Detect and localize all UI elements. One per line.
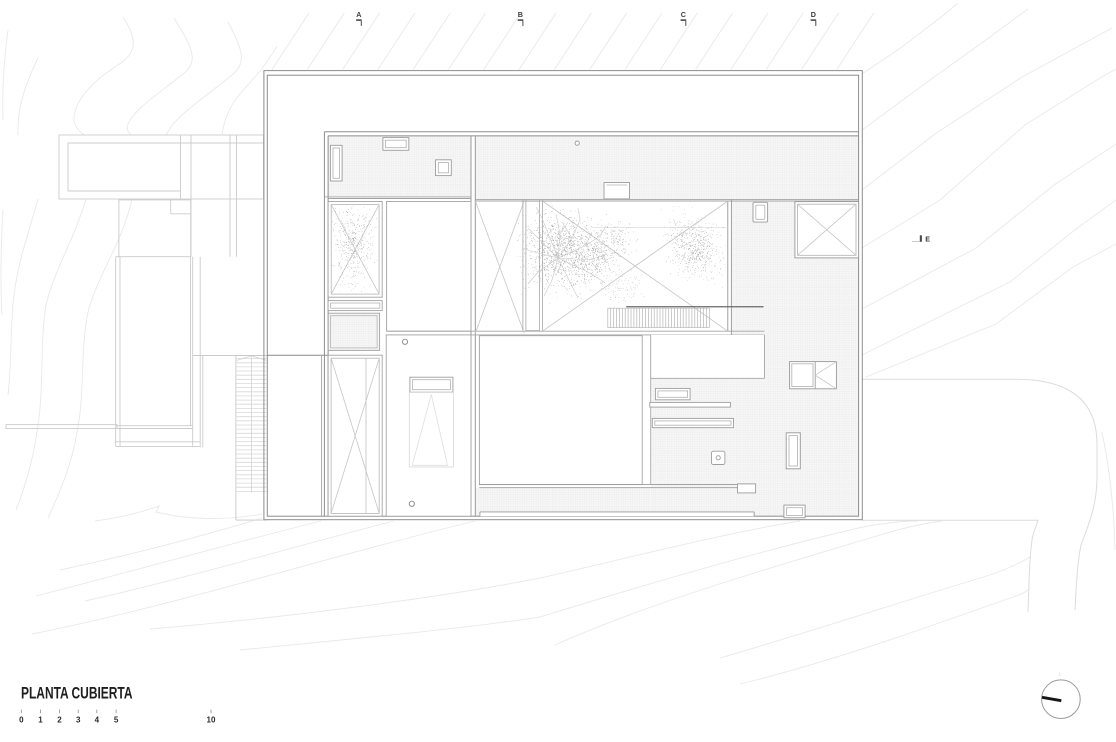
svg-text:B: B: [518, 10, 523, 19]
svg-text:0: 0: [19, 716, 24, 725]
svg-text:10: 10: [207, 716, 216, 725]
svg-text:C: C: [681, 10, 686, 19]
svg-text:4: 4: [95, 716, 100, 725]
svg-text:PLANTA CUBIERTA: PLANTA CUBIERTA: [21, 685, 133, 703]
svg-text:5: 5: [114, 716, 119, 725]
svg-text:1: 1: [38, 716, 43, 725]
svg-text:E: E: [925, 234, 930, 243]
svg-text:A: A: [356, 10, 361, 19]
svg-text:D: D: [811, 10, 816, 19]
svg-text:2: 2: [57, 716, 62, 725]
svg-text:3: 3: [76, 716, 81, 725]
